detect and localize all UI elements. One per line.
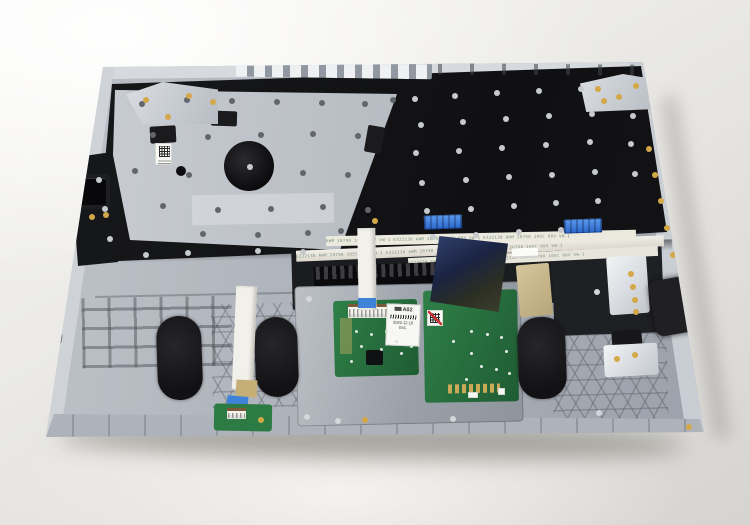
- io-cable-stiffener: [236, 379, 258, 397]
- ffc-blue-tab-2: [564, 218, 602, 233]
- foam-pad-1: [156, 315, 204, 401]
- pcb-specks: [0, 0, 3, 3]
- screws-gold: [0, 0, 6, 6]
- pcb-white-box: [498, 388, 505, 395]
- usb-port-opening: [74, 178, 106, 205]
- screws-dark: [0, 0, 6, 6]
- pcb-white-box: [468, 392, 478, 398]
- inspection-label: A02 2022.12.16 EVL: [385, 303, 420, 346]
- foam-pad-3: [517, 316, 568, 400]
- qr-code: [159, 146, 170, 157]
- qr-label-touchpad: [427, 310, 443, 326]
- io-board-connector: [227, 408, 246, 419]
- copper-pad: [340, 318, 352, 354]
- edge-notch: [61, 292, 66, 301]
- ffc-blue-tab-1: [424, 214, 462, 229]
- metal-bracket-right-lower: [603, 343, 659, 378]
- qr-label-plate: [155, 143, 172, 165]
- label-model: A02: [402, 307, 412, 313]
- screws-light: [0, 0, 6, 6]
- qr-label-text-lines: [158, 159, 171, 164]
- black-tape-piece: [150, 125, 177, 143]
- product-photo: E322138 AWM 20798 105C 60V VW-1 E322138 …: [0, 0, 750, 525]
- kapton-sticker: [516, 263, 553, 318]
- label-grade: EVL: [389, 325, 417, 331]
- edge-notch: [65, 250, 70, 259]
- label-model-row: A02: [389, 307, 417, 315]
- plate-small-hole: [176, 166, 186, 176]
- touchpad-ic-chip: [366, 350, 383, 365]
- touchpad-flex-cable: [430, 236, 508, 312]
- metal-bracket-right-upper: [606, 255, 650, 316]
- foam-pad-2: [254, 316, 300, 397]
- cable-mini-label: [512, 248, 538, 259]
- red-slash-mark: [428, 311, 442, 325]
- latch-hooks: [438, 63, 638, 75]
- plate-tape: [192, 193, 335, 225]
- label-stamp: [394, 307, 401, 311]
- touchpad-ribbon-blue-tab: [358, 298, 376, 308]
- vent-slots: [236, 60, 432, 80]
- plate-round-cutout: [224, 141, 274, 191]
